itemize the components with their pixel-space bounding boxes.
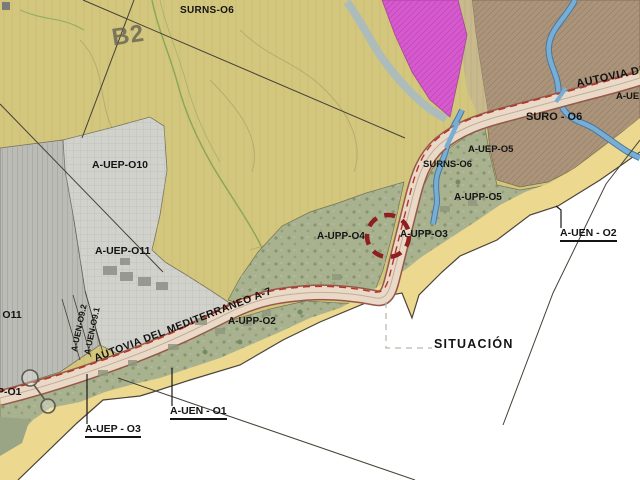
sheet-watermark-b2: B2: [110, 22, 146, 51]
zone-label-a-uep-o5: A-UEP-O5: [468, 145, 513, 155]
callout-label-a-uep-o3: A-UEP - O3: [85, 424, 141, 438]
zone-label-p-o1-partial: P-O1: [0, 387, 22, 398]
planning-map: SURNS-O6 B2 A-UEP-O10 A-UEP-O11 - O11 A-…: [0, 0, 640, 480]
callout-label-a-uen-o1: A-UEN - O1: [170, 406, 227, 420]
zone-label-a-uep-o11: A-UEP-O11: [95, 246, 150, 257]
zone-label-a-upp-o5: A-UPP-O5: [454, 193, 502, 203]
zone-label-a-uep-o10: A-UEP-O10: [92, 160, 148, 171]
zone-label-o11-partial: - O11: [0, 310, 22, 321]
zone-label-a-upp-o2: A-UPP-O2: [228, 317, 276, 327]
zone-label-a-upp-o3: A-UPP-O3: [400, 230, 448, 240]
zone-label-a-ue-partial: A-UE: [616, 92, 639, 102]
zone-label-surns-o6-mid: SURNS-O6: [423, 160, 472, 170]
zone-label-a-upp-o4: A-UPP-O4: [317, 232, 365, 242]
situacion-label: SITUACIÓN: [434, 338, 514, 351]
zone-label-surns-o6-top: SURNS-O6: [180, 6, 234, 16]
zone-label-suro-o6: SURO - O6: [526, 112, 582, 123]
callout-label-a-uen-o2: A-UEN - O2: [560, 228, 617, 242]
